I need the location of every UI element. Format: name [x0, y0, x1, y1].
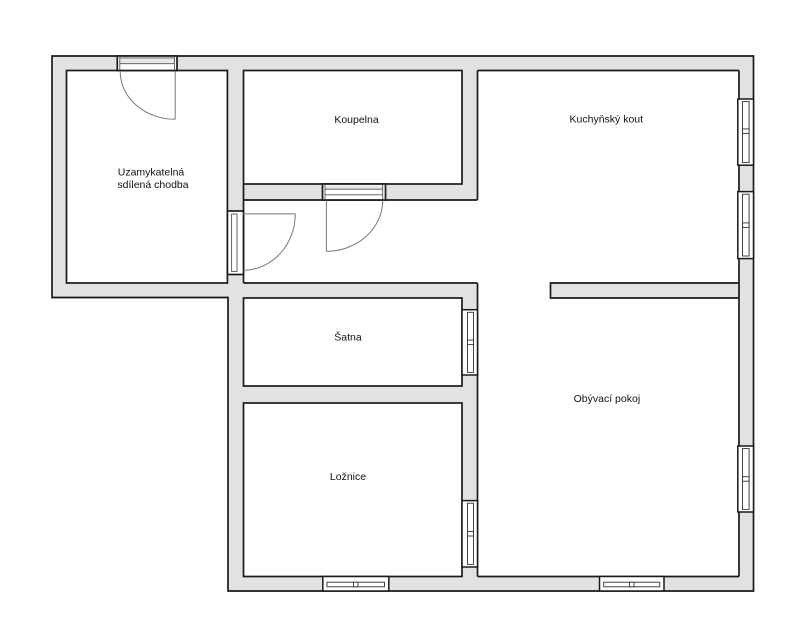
svg-text:Ložnice: Ložnice: [330, 471, 366, 483]
svg-text:Obývací pokoj: Obývací pokoj: [574, 393, 641, 405]
svg-text:Koupelna: Koupelna: [334, 114, 379, 126]
svg-text:Kuchyňský kout: Kuchyňský kout: [570, 114, 644, 126]
svg-text:Šatna: Šatna: [334, 330, 362, 343]
svg-text:Uzamykatelná: Uzamykatelná: [118, 167, 185, 179]
svg-text:sdílená chodba: sdílená chodba: [117, 179, 188, 191]
